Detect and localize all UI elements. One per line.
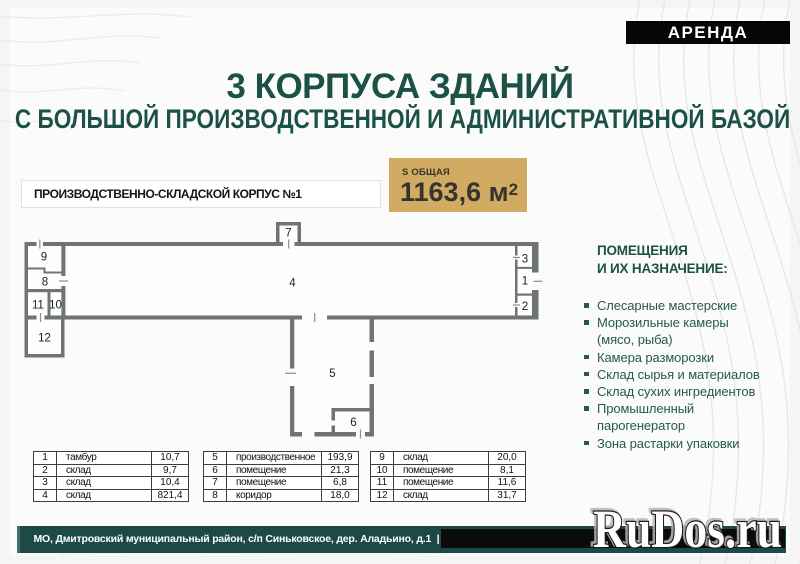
svg-text:7: 7 (285, 228, 291, 240)
svg-text:3: 3 (522, 254, 528, 266)
svg-text:10: 10 (49, 300, 62, 312)
svg-text:9: 9 (41, 252, 47, 264)
svg-text:2: 2 (522, 301, 528, 313)
svg-text:8: 8 (42, 277, 48, 289)
svg-text:6: 6 (350, 417, 356, 429)
svg-text:11: 11 (32, 300, 44, 312)
svg-text:1: 1 (522, 276, 528, 288)
svg-text:4: 4 (289, 278, 296, 290)
svg-text:RuDos.ru: RuDos.ru (593, 499, 782, 559)
svg-text:5: 5 (329, 368, 335, 380)
svg-text:12: 12 (38, 333, 51, 345)
